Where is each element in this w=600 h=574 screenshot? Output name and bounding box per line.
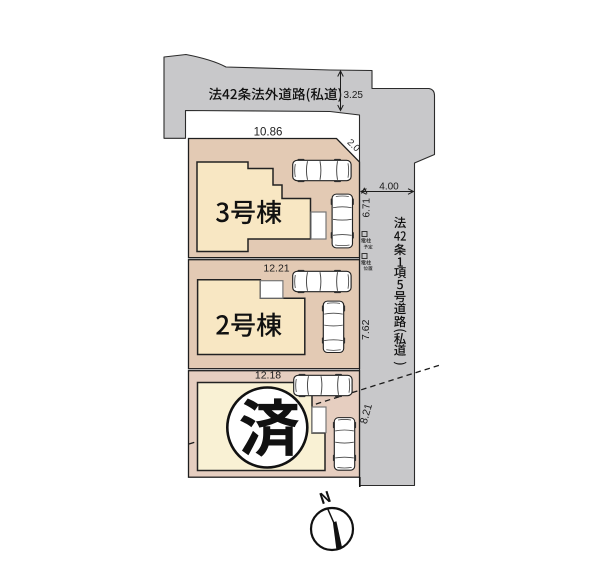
svg-text:10.86: 10.86 xyxy=(254,127,283,139)
svg-text:6.71: 6.71 xyxy=(362,198,373,218)
svg-text:12.18: 12.18 xyxy=(255,370,281,382)
svg-text:7.62: 7.62 xyxy=(360,319,372,340)
svg-text:12.21: 12.21 xyxy=(263,263,289,275)
svg-text:4.00: 4.00 xyxy=(379,182,399,193)
svg-text:3.25: 3.25 xyxy=(344,90,364,101)
